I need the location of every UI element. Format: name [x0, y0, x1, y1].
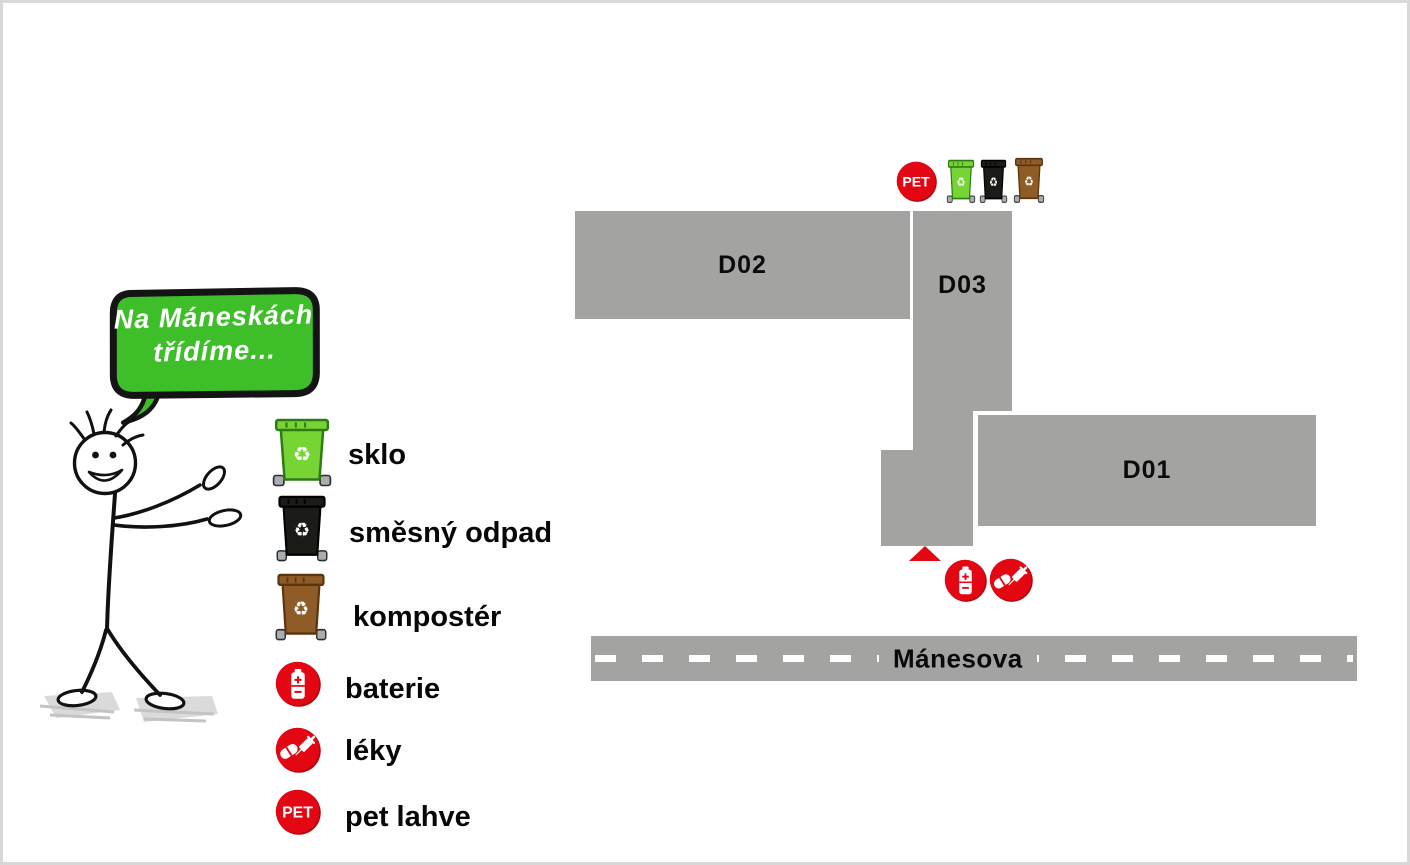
body [107, 494, 115, 630]
legend-label-pet-lahve: pet lahve [345, 800, 471, 834]
map-medicine-badge-icon [989, 558, 1033, 602]
upper-hand [200, 463, 229, 493]
building-d03-label: D03 [913, 271, 1012, 300]
map-glass-bin-icon [946, 158, 976, 204]
entrance-arrow-icon [909, 546, 941, 561]
pet-badge-icon [275, 789, 321, 835]
map-mixed-waste-bin-icon [979, 158, 1008, 204]
speech-bubble-line1: Na Máneskách [110, 297, 317, 336]
lower-arm [114, 519, 207, 527]
map-battery-badge-icon [944, 559, 987, 602]
right-leg [108, 630, 160, 695]
building-d01: D01 [978, 415, 1316, 526]
speech-bubble-text: Na Máneskách třídíme... [110, 297, 318, 370]
building-d02-label: D02 [718, 251, 767, 280]
battery-badge-icon [275, 661, 321, 707]
stick-figure-mascot [28, 406, 258, 738]
mixed-waste-bin-icon [275, 493, 329, 563]
map-pet-badge-icon [896, 161, 937, 202]
upper-arm [114, 485, 200, 518]
legend-label-komposter: kompostér [353, 600, 501, 634]
street-label: Mánesova [879, 643, 1037, 674]
glass-bin-icon [271, 416, 333, 488]
poster-canvas: ♻ [0, 0, 1410, 865]
composter-bin-icon [274, 571, 328, 642]
street-manesova: Mánesova [591, 636, 1357, 681]
map-composter-bin-icon [1013, 156, 1045, 204]
legend-label-smesny-odpad: směsný odpad [349, 516, 552, 550]
legend-label-sklo: sklo [348, 438, 406, 472]
right-eye [110, 452, 117, 459]
left-eye [92, 452, 99, 459]
legend-label-baterie: baterie [345, 672, 440, 706]
legend-label-leky: léky [345, 734, 401, 768]
building-d02: D02 [575, 211, 910, 319]
speech-bubble-line2: třídíme... [111, 331, 318, 370]
medicine-badge-icon [275, 727, 321, 773]
lower-hand [208, 507, 242, 528]
left-leg [82, 630, 106, 692]
building-d01-label: D01 [1123, 456, 1172, 485]
